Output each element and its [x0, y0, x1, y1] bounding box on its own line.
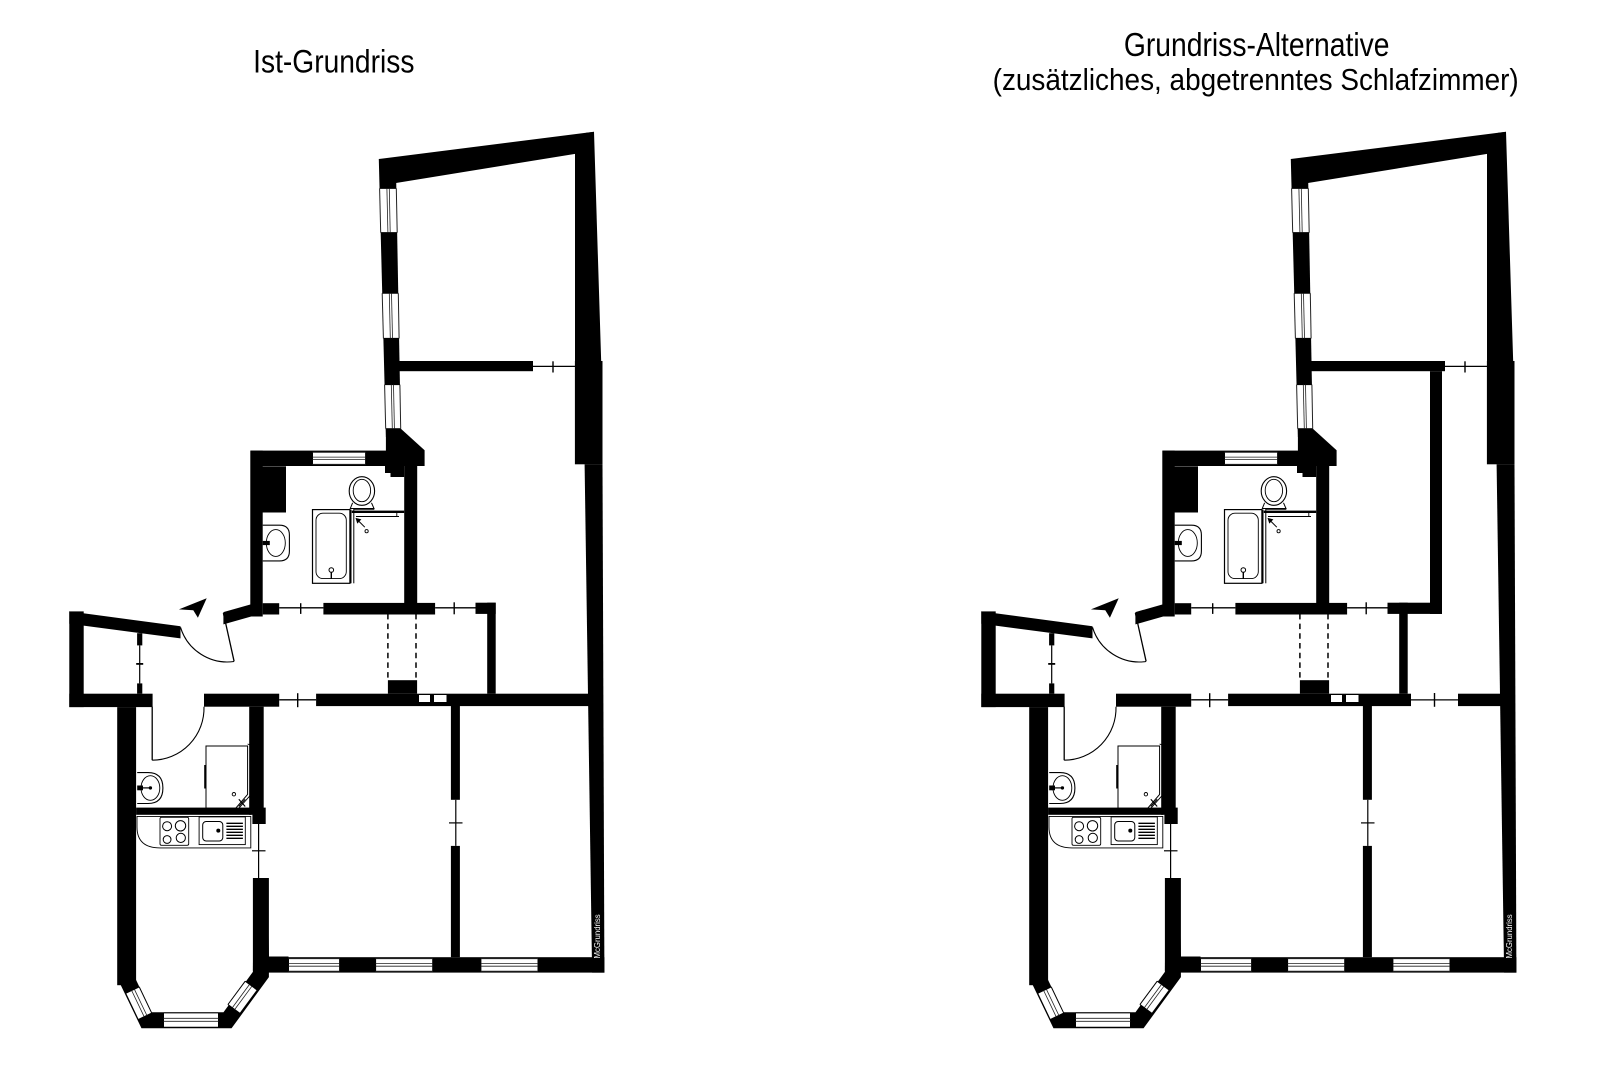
svg-text:Grundriss-Alternative: Grundriss-Alternative [1124, 27, 1390, 64]
svg-text:(zusätzliches, abgetrenntes Sc: (zusätzliches, abgetrenntes Schlafzimmer… [993, 63, 1519, 97]
svg-text:Ist-Grundriss: Ist-Grundriss [253, 44, 414, 80]
svg-text:McGrundriss: McGrundriss [593, 914, 602, 958]
svg-text:McGrundriss: McGrundriss [1505, 914, 1514, 958]
